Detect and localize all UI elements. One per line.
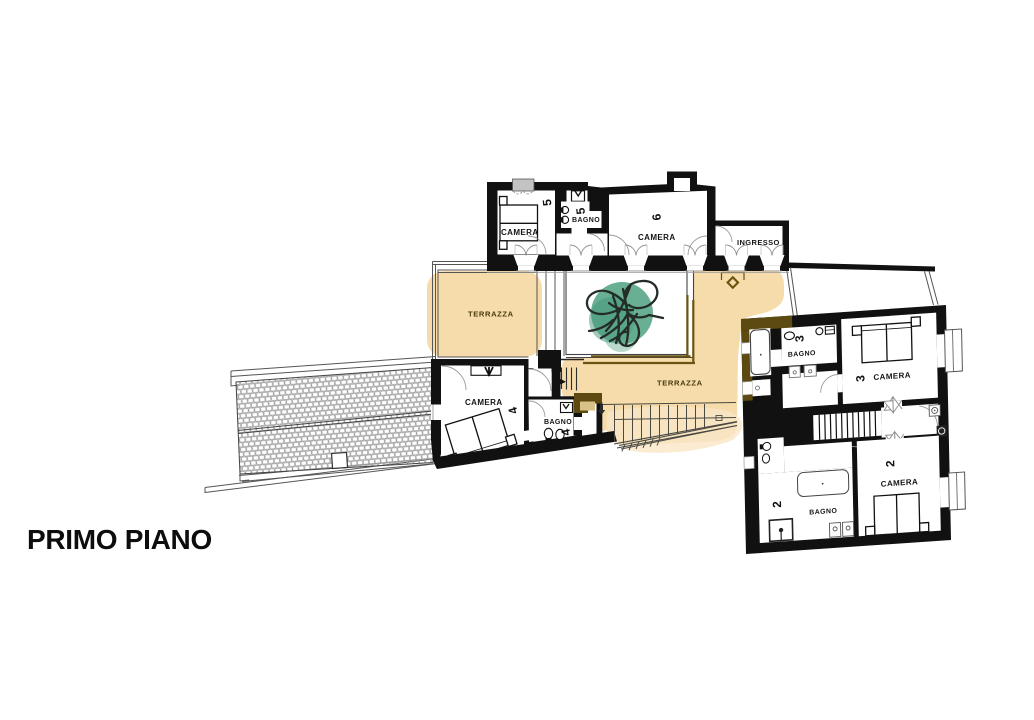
svg-text:TERRAZZA: TERRAZZA [468,310,514,319]
svg-text:2: 2 [770,500,784,508]
svg-text:3: 3 [853,374,867,382]
svg-text:CAMERA: CAMERA [638,233,676,242]
svg-text:CAMERA: CAMERA [465,398,503,407]
svg-text:3: 3 [792,335,806,343]
svg-text:PRIMO PIANO: PRIMO PIANO [27,524,212,555]
svg-text:2: 2 [883,460,897,468]
svg-text:CAMERA: CAMERA [501,228,539,237]
svg-text:BAGNO: BAGNO [572,217,600,224]
svg-text:TERRAZZA: TERRAZZA [657,379,703,388]
svg-text:BAGNO: BAGNO [544,419,572,426]
